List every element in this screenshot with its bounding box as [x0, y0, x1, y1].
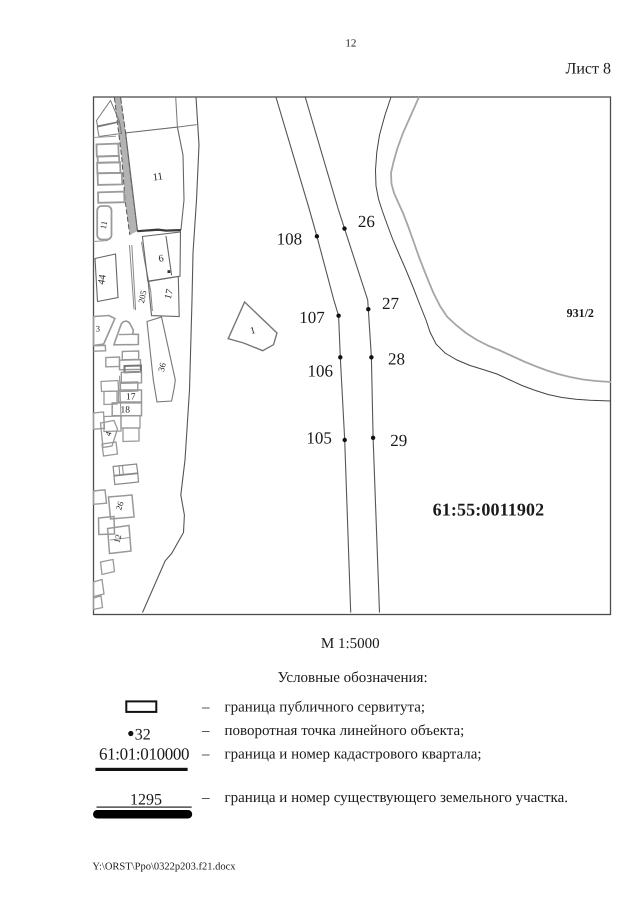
- svg-text:12: 12: [345, 38, 356, 50]
- svg-text:26: 26: [358, 212, 375, 231]
- svg-text:Условные обозначения:: Условные обозначения:: [278, 670, 428, 686]
- svg-text:3: 3: [96, 324, 100, 334]
- svg-text:29: 29: [390, 431, 407, 450]
- svg-text:107: 107: [299, 308, 325, 327]
- svg-text:61:01:010000: 61:01:010000: [99, 745, 190, 764]
- svg-text:М 1:5000: М 1:5000: [321, 636, 380, 652]
- svg-text:931/2: 931/2: [567, 306, 594, 320]
- svg-text:17: 17: [126, 393, 136, 403]
- svg-text:44: 44: [96, 274, 109, 286]
- svg-text:28: 28: [388, 350, 405, 369]
- svg-text:– поворотная точка линейного: – поворотная точка линейного объекта;: [201, 723, 464, 739]
- svg-text:61:55:0011902: 61:55:0011902: [433, 500, 544, 520]
- svg-text:11: 11: [98, 220, 109, 230]
- svg-text:32: 32: [135, 727, 151, 744]
- svg-text:Лист 8: Лист 8: [565, 61, 611, 78]
- svg-text:– граница публичного сервитут: – граница публичного сервитута;: [201, 700, 425, 716]
- svg-text:1295: 1295: [130, 792, 162, 809]
- svg-text:– граница и номер существующе: – граница и номер существующего земельно…: [201, 790, 568, 806]
- svg-text:– граница и номер кадастровог: – граница и номер кадастрового квартала;: [201, 746, 482, 762]
- svg-text:106: 106: [308, 362, 334, 381]
- svg-text:18: 18: [121, 406, 131, 416]
- svg-text:Y:\ORST\Ppo\0322p203.f21.docx: Y:\ORST\Ppo\0322p203.f21.docx: [92, 862, 236, 873]
- svg-text:108: 108: [277, 230, 303, 249]
- svg-text:105: 105: [306, 428, 332, 447]
- svg-text:27: 27: [382, 294, 400, 313]
- svg-text:11: 11: [152, 171, 164, 183]
